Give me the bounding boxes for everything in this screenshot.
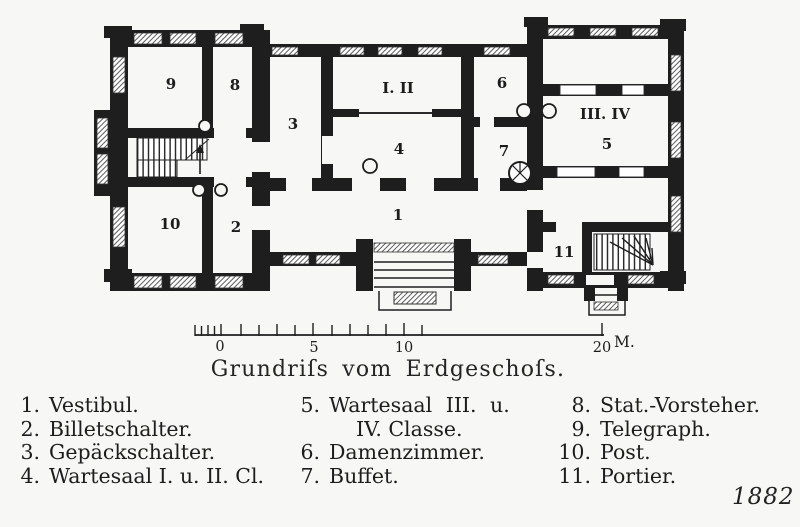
legend-number: 2. [8,418,40,442]
scale-tick-5: 5 [309,340,318,356]
room-label-6: 6 [497,74,507,92]
staircase-left-wing [137,138,209,177]
legend-item-1: 1. Vestibul. [8,394,264,418]
scale-tick-10: 10 [395,340,413,356]
legend-column-2: 5. Wartesaal III. u. IV. Classe. 6. Dame… [288,394,510,488]
legend-number: 3. [8,441,40,465]
legend-text: Buffet. [329,465,399,489]
room-label-5: 5 [602,135,612,153]
legend-item-4: 4. Wartesaal I. u. II. Cl. [8,465,264,489]
legend-column-3: 8. Stat.-Vorsteher. 9. Telegraph. 10. Po… [549,394,760,488]
legend-text-line1: Wartesaal III. u. [329,393,510,417]
legend-item-5: 5. Wartesaal III. u. IV. Classe. [288,394,510,441]
legend-number: 7. [288,465,320,489]
legend-text: Telegraph. [600,418,711,442]
staircase-right-wing [594,234,653,270]
legend-number: 5. [288,394,320,441]
legend-number: 8. [549,394,591,418]
wide-openings [557,85,644,177]
legend-item-10: 10. Post. [549,441,760,465]
legend-text: Stat.-Vorsteher. [600,394,760,418]
stove-icon [363,159,377,173]
legend-text: Gepäckschalter. [49,441,215,465]
class-label-3-4: III. IV [580,105,631,123]
legend-item-2: 2. Billetschalter. [8,418,264,442]
legend-item-6: 6. Damenzimmer. [288,441,510,465]
plan-title: Grundriſs vom Erdgeschoſs. [188,357,588,382]
year-annotation: 1882 [732,484,795,510]
room-label-9: 9 [166,75,176,93]
room-label-3: 3 [288,115,298,133]
clock-icon [509,162,531,184]
legend-text: Damenzimmer. [329,441,485,465]
legend-item-7: 7. Buffet. [288,465,510,489]
legend-item-3: 3. Gepäckschalter. [8,441,264,465]
room-label-8: 8 [230,76,240,94]
legend-number: 6. [288,441,320,465]
legend-text: Wartesaal I. u. II. Cl. [49,465,264,489]
legend-item-11: 11. Portier. [549,465,760,489]
legend-item-8: 8. Stat.-Vorsteher. [549,394,760,418]
legend-number: 10. [549,441,591,465]
stove-icon [193,184,205,196]
room-label-10: 10 [160,215,181,233]
legend-number: 9. [549,418,591,442]
stove-icon [517,104,531,118]
scale-unit: M. [614,333,635,351]
legend-text: Vestibul. [49,394,139,418]
room-label-11: 11 [554,243,575,261]
legend-number: 4. [8,465,40,489]
class-label-1-2: I. II [382,79,414,97]
scale-tick-0: 0 [215,339,224,355]
room-label-7: 7 [499,142,509,160]
stove-icon [199,120,211,132]
room-label-4: 4 [394,140,404,158]
legend-text: Billetschalter. [49,418,193,442]
scale-tick-20: 20 [593,340,611,356]
legend-number: 1. [8,394,40,418]
legend-text: Wartesaal III. u. IV. Classe. [329,394,510,441]
stove-icon [542,104,556,118]
legend-text-line2: IV. Classe. [356,417,463,441]
scale-bar: 0 5 10 20 M. [195,323,635,356]
legend-column-1: 1. Vestibul. 2. Billetschalter. 3. Gepäc… [8,394,264,488]
room-label-1: 1 [393,206,403,224]
stove-icon [215,184,227,196]
room-label-2: 2 [231,218,241,236]
legend-number: 11. [549,465,591,489]
legend-item-9: 9. Telegraph. [549,418,760,442]
legend-text: Post. [600,441,651,465]
legend-text: Portier. [600,465,676,489]
